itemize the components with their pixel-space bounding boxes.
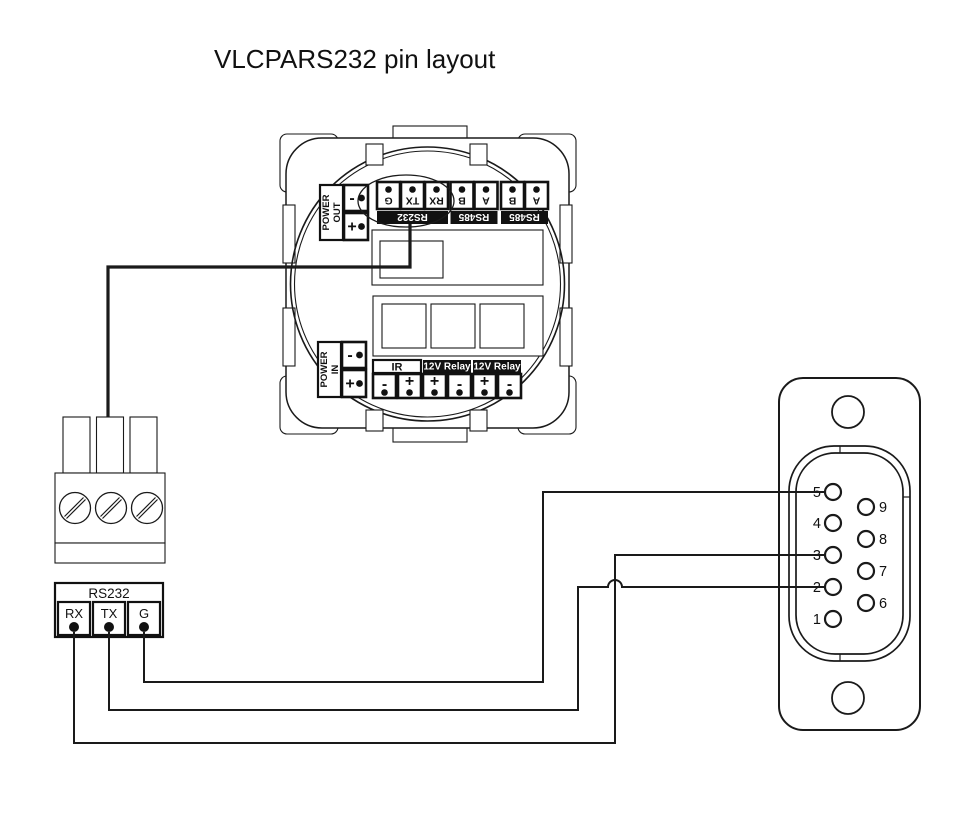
db9-pin-number: 7 bbox=[879, 564, 887, 580]
db9-pin-number: 1 bbox=[813, 612, 821, 628]
power-out-label: OUT bbox=[332, 202, 343, 222]
terminal-dot bbox=[433, 186, 440, 193]
screw-block-pin bbox=[97, 417, 124, 473]
power-in-block: POWER IN - + bbox=[318, 342, 366, 397]
bottom-terminal-dot bbox=[456, 389, 463, 396]
terminal-dot bbox=[533, 186, 540, 193]
bottom-terminal-sign: + bbox=[480, 373, 489, 390]
breakout-header: RS232 bbox=[88, 586, 129, 601]
db9-pin-2 bbox=[825, 579, 841, 595]
screw-block-base bbox=[55, 543, 165, 563]
power-out-pos-sign: + bbox=[347, 219, 356, 236]
terminal-dot bbox=[483, 186, 490, 193]
top-terminal-strip: G TX RX B A B A RS232 RS485 bbox=[377, 182, 548, 224]
db9-pin-8 bbox=[858, 531, 874, 547]
terminal-dot bbox=[385, 186, 392, 193]
power-out-label: POWER bbox=[321, 194, 332, 230]
device-clip bbox=[470, 410, 487, 431]
terminal-letter: RX bbox=[429, 195, 444, 207]
device-bottom-tab bbox=[393, 428, 467, 442]
db9-pin-5 bbox=[825, 484, 841, 500]
terminal-letter: A bbox=[532, 195, 540, 207]
terminal-letter: A bbox=[482, 195, 490, 207]
bottom-terminal-dot bbox=[506, 389, 513, 396]
wire-tx-to-pin2 bbox=[109, 580, 826, 710]
screw-block-pin bbox=[63, 417, 90, 473]
terminal-letter: G bbox=[384, 195, 392, 207]
device-clip bbox=[470, 144, 487, 165]
terminal-letter: B bbox=[508, 195, 516, 207]
screw-terminal-block bbox=[55, 417, 165, 563]
device-clip bbox=[366, 144, 383, 165]
db9-pin-number: 8 bbox=[879, 532, 887, 548]
db9-pin-1 bbox=[825, 611, 841, 627]
power-out-block: POWER OUT - + bbox=[320, 185, 368, 240]
rs232-breakout: RS232 RX TX G bbox=[55, 583, 163, 637]
screw-block-pin bbox=[130, 417, 157, 473]
device-module: POWER OUT - + G TX RX B bbox=[280, 126, 576, 442]
device-clip bbox=[366, 410, 383, 431]
power-out-pos-dot bbox=[358, 223, 365, 230]
db9-mounting-hole-bottom bbox=[832, 682, 864, 714]
breakout-pin-label: TX bbox=[101, 606, 118, 621]
breakout-pin-dot bbox=[69, 622, 79, 632]
power-in-label: POWER bbox=[319, 351, 330, 387]
db9-pin-6 bbox=[858, 595, 874, 611]
terminal-dot bbox=[409, 186, 416, 193]
group-label-text: RS232 bbox=[397, 211, 428, 222]
db9-pin-number: 4 bbox=[813, 516, 821, 532]
device-edge-clip bbox=[560, 308, 572, 366]
breakout-pin-label: G bbox=[139, 606, 149, 621]
wire-rx-to-pin3 bbox=[74, 555, 825, 743]
db9-shell-outer bbox=[789, 446, 910, 661]
bottom-terminal-strip: IR 12V Relay 12V Relay - + + - + - bbox=[373, 360, 521, 398]
diagram-page: VLCPARS232 pin layout bbox=[0, 0, 972, 824]
breakout-pin-dot bbox=[104, 622, 114, 632]
db9-pin-7 bbox=[858, 563, 874, 579]
page-title: VLCPARS232 pin layout bbox=[214, 44, 496, 74]
db9-pin-4 bbox=[825, 515, 841, 531]
group-label-text: RS485 bbox=[509, 211, 540, 222]
ir-label: IR bbox=[392, 362, 403, 374]
terminal-dot bbox=[459, 186, 466, 193]
relay-label: 12V Relay bbox=[473, 362, 521, 373]
device-edge-clip bbox=[283, 308, 295, 366]
power-in-neg-dot bbox=[356, 352, 363, 359]
power-in-pos-sign: + bbox=[345, 376, 354, 393]
power-in-pos-dot bbox=[356, 380, 363, 387]
terminal-letter: B bbox=[458, 195, 466, 207]
power-in-label: IN bbox=[330, 365, 341, 375]
bottom-terminal-dot bbox=[481, 389, 488, 396]
bottom-terminal-dot bbox=[381, 389, 388, 396]
relay-label: 12V Relay bbox=[423, 362, 471, 373]
bottom-terminal-dot bbox=[406, 389, 413, 396]
db9-pin-number: 6 bbox=[879, 596, 887, 612]
power-out-neg-sign: - bbox=[349, 190, 354, 207]
pin-layout-diagram: VLCPARS232 pin layout bbox=[0, 0, 972, 824]
breakout-pin-label: RX bbox=[65, 606, 83, 621]
db9-pin-9 bbox=[858, 499, 874, 515]
group-label-text: RS485 bbox=[458, 211, 489, 222]
db9-pin-number: 9 bbox=[879, 500, 887, 516]
device-internal-box bbox=[431, 304, 475, 348]
power-in-neg-sign: - bbox=[347, 347, 352, 364]
db9-mounting-hole-top bbox=[832, 396, 864, 428]
device-internal-box bbox=[480, 304, 524, 348]
device-internal-box bbox=[382, 304, 426, 348]
db9-pin-3 bbox=[825, 547, 841, 563]
bottom-terminal-dot bbox=[431, 389, 438, 396]
terminal-letter: TX bbox=[406, 195, 419, 207]
breakout-pin-dot bbox=[139, 622, 149, 632]
bottom-terminal-sign: + bbox=[405, 373, 414, 390]
bottom-terminal-sign: + bbox=[430, 373, 439, 390]
terminal-dot bbox=[509, 186, 516, 193]
